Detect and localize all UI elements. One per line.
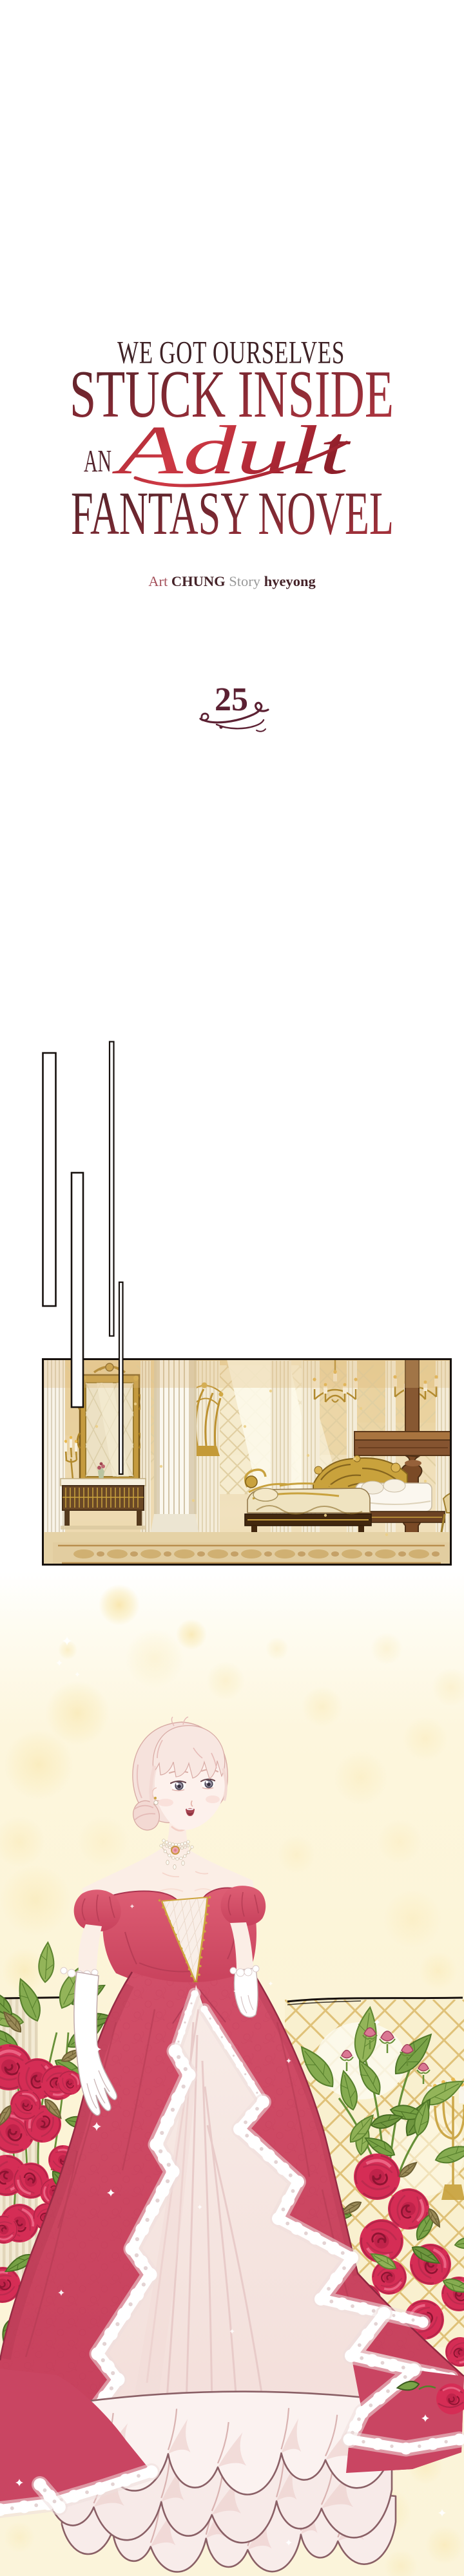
svg-text:AN: AN <box>84 443 111 478</box>
svg-text:Art CHUNG Story hyeyong: Art CHUNG Story hyeyong <box>148 573 316 589</box>
svg-text:Adult: Adult <box>112 412 352 489</box>
svg-text:FANTASY NOVEL: FANTASY NOVEL <box>71 479 394 547</box>
svg-text:25: 25 <box>215 681 248 718</box>
